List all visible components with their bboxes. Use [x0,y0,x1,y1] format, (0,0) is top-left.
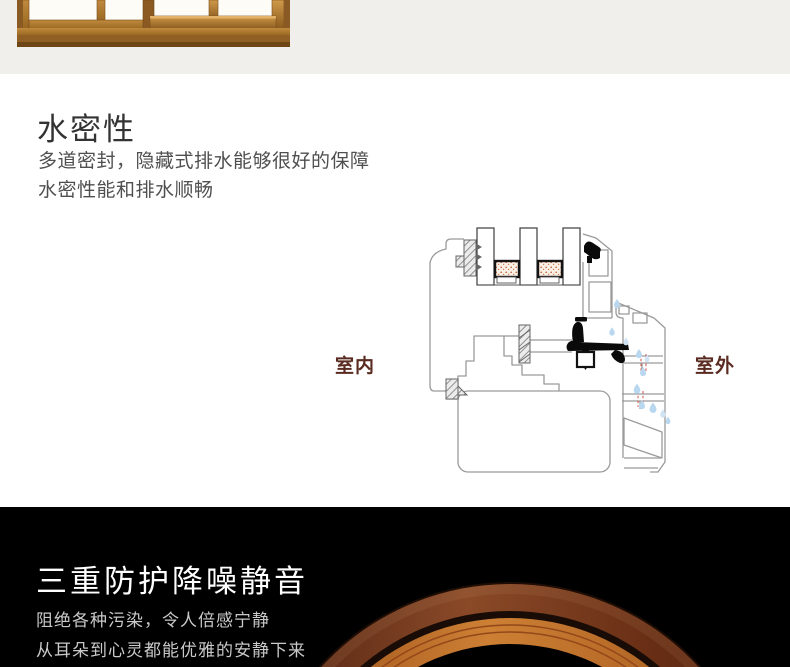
wood-window-photo [17,0,290,47]
section-desc-noise: 阻绝各种污染，令人倍感宁静从耳朵到心灵都能优雅的安静下来 [36,606,306,666]
top-banner [0,0,790,74]
section-title-water: 水密性 [37,104,136,149]
drainage-path-marks [638,354,646,407]
glass-panes [477,228,580,285]
noise-desc-line-2: 从耳朵到心灵都能优雅的安静下来 [36,641,306,660]
section-title-noise: 三重防护降噪静音 [36,556,308,601]
label-outdoor: 室外 [695,351,735,378]
window-profile-cross-section-diagram [420,226,680,488]
round-window-rings [253,583,767,667]
desc-line-1: 多道密封，隐藏式排水能够很好的保障 [38,151,370,172]
desc-line-2: 水密性能和排水顺畅 [38,180,214,201]
noise-reduction-section: 三重防护降噪静音 阻绝各种污染，令人倍感宁静从耳朵到心灵都能优雅的安静下来 [0,507,790,667]
label-indoor: 室内 [335,351,375,378]
section-desc-water: 多道密封，隐藏式排水能够很好的保障水密性能和排水顺畅 [38,147,370,205]
seal-slot [577,352,594,367]
noise-desc-line-1: 阻绝各种污染，令人倍感宁静 [36,611,270,630]
